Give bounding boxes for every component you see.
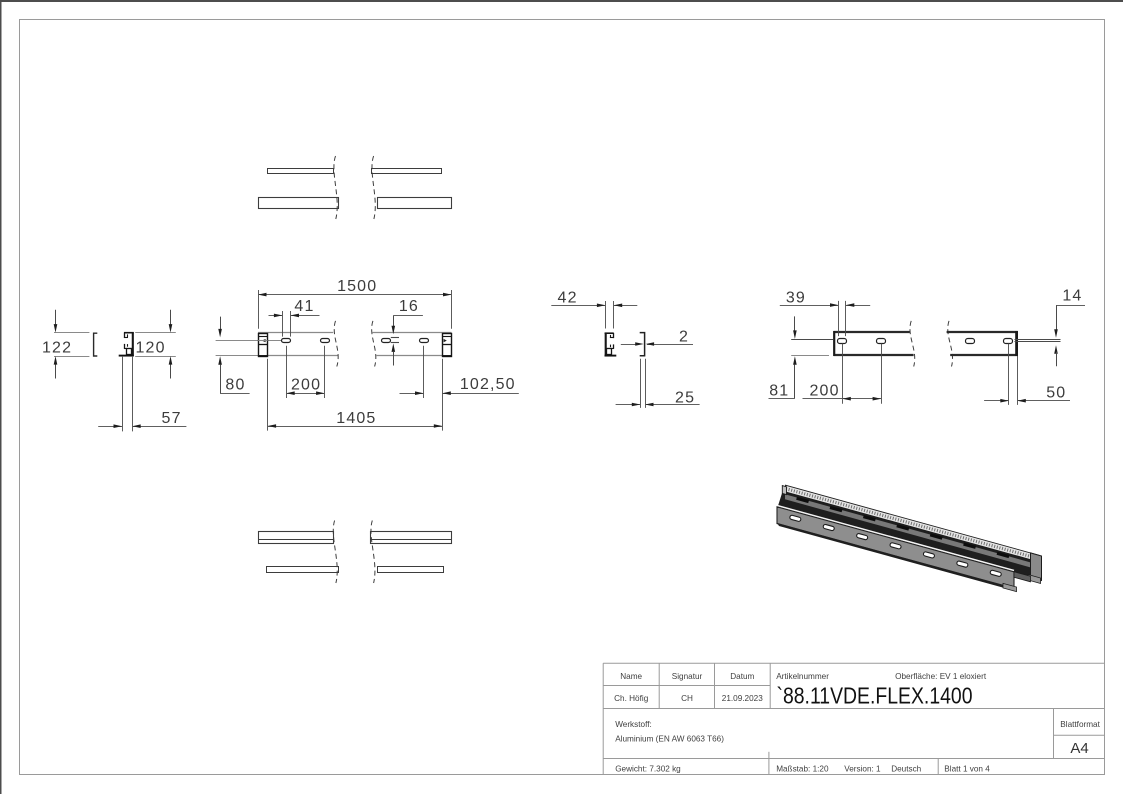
svg-text:50: 50: [1046, 384, 1066, 401]
svg-text:Ch. Höfig: Ch. Höfig: [614, 694, 649, 703]
svg-text:39: 39: [786, 289, 806, 306]
svg-text:81: 81: [769, 382, 789, 399]
svg-text:Blatt 1 von 4: Blatt 1 von 4: [944, 765, 990, 774]
svg-text:1405: 1405: [336, 410, 376, 427]
svg-text:Maßstab: 1:20: Maßstab: 1:20: [776, 765, 829, 774]
svg-text:102,50: 102,50: [460, 376, 516, 393]
svg-text:120: 120: [136, 339, 166, 356]
svg-text:57: 57: [162, 410, 182, 427]
svg-text:16: 16: [399, 298, 419, 315]
svg-text:42: 42: [558, 290, 578, 307]
svg-text:25: 25: [675, 390, 695, 407]
svg-text:80: 80: [225, 377, 245, 394]
svg-text:A4: A4: [1070, 740, 1088, 757]
svg-text:200: 200: [810, 382, 840, 399]
svg-text:200: 200: [291, 377, 321, 394]
svg-text:Oberfläche: EV 1 eloxiert: Oberfläche: EV 1 eloxiert: [895, 672, 987, 681]
svg-text:122: 122: [42, 339, 72, 356]
svg-text:Version: 1: Version: 1: [844, 765, 881, 774]
svg-text:`88.11VDE.FLEX.1400: `88.11VDE.FLEX.1400: [777, 683, 973, 709]
svg-text:Blattformat: Blattformat: [1060, 720, 1100, 729]
svg-text:1500: 1500: [337, 278, 377, 295]
svg-text:Gewicht: 7.302 kg: Gewicht: 7.302 kg: [615, 765, 681, 774]
svg-text:Artikelnummer: Artikelnummer: [776, 672, 829, 681]
svg-text:41: 41: [294, 298, 314, 315]
svg-text:Werkstoff:: Werkstoff:: [615, 720, 652, 729]
svg-text:Signatur: Signatur: [672, 672, 703, 681]
svg-text:14: 14: [1062, 288, 1082, 305]
svg-text:Name: Name: [620, 672, 642, 681]
svg-text:2: 2: [679, 329, 688, 346]
svg-text:Deutsch: Deutsch: [891, 765, 921, 774]
svg-text:21.09.2023: 21.09.2023: [722, 694, 763, 703]
svg-text:Datum: Datum: [730, 672, 754, 681]
svg-text:CH: CH: [681, 694, 693, 703]
svg-text:Aluminium (EN AW 6063 T66): Aluminium (EN AW 6063 T66): [615, 735, 724, 744]
